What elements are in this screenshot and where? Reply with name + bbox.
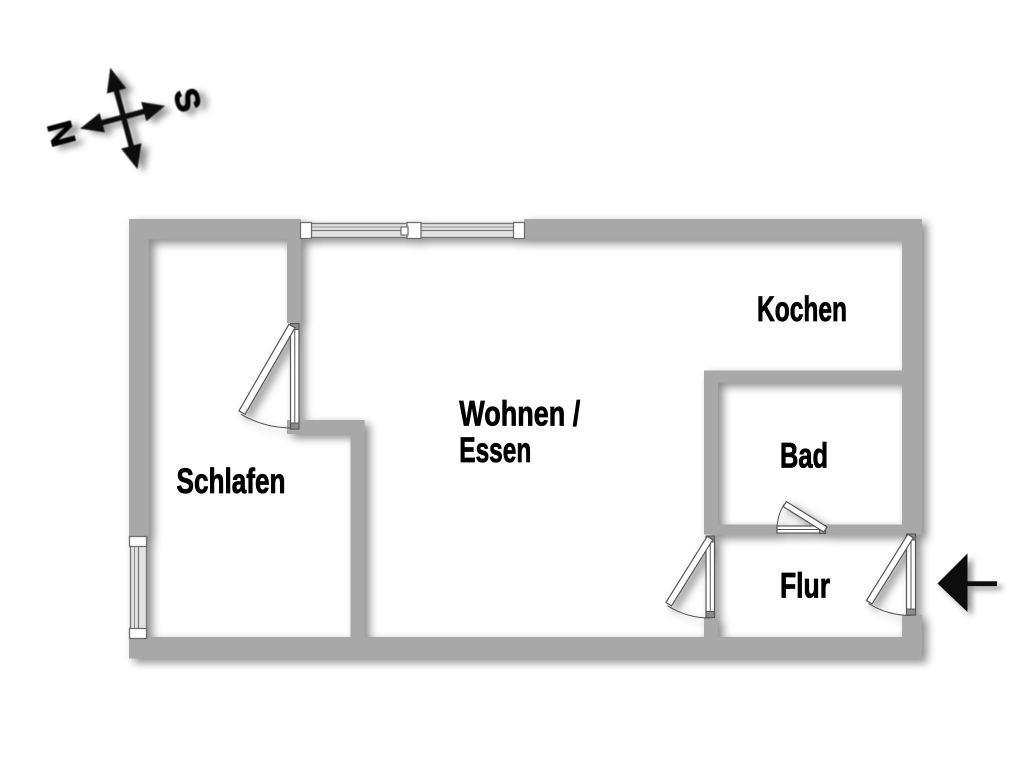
svg-text:S: S xyxy=(165,84,208,116)
svg-text:Kochen: Kochen xyxy=(757,290,847,329)
svg-text:Essen: Essen xyxy=(459,431,531,470)
svg-text:N: N xyxy=(41,117,84,151)
svg-text:Flur: Flur xyxy=(780,567,830,606)
svg-text:Wohnen /: Wohnen / xyxy=(459,395,580,434)
svg-text:Bad: Bad xyxy=(780,437,828,476)
svg-text:Schlafen: Schlafen xyxy=(177,462,286,501)
